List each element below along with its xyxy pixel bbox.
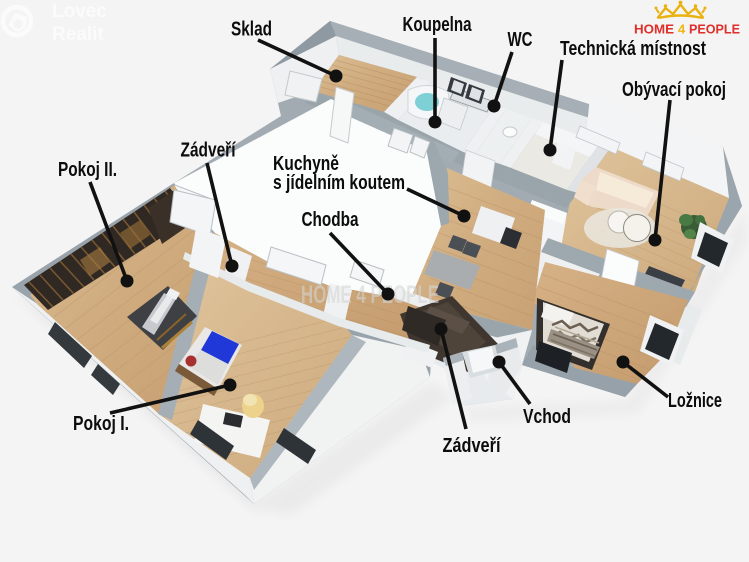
svg-text:Pokoj II.: Pokoj II. [58,159,117,181]
svg-text:Obývací pokoj: Obývací pokoj [622,79,726,101]
svg-text:Vchod: Vchod [523,406,571,428]
svg-text:Ložnice: Ložnice [668,390,722,412]
svg-text:PEOPLE: PEOPLE [689,22,740,37]
svg-text:Lovec: Lovec [52,1,107,22]
svg-text:Sklad: Sklad [231,19,272,41]
svg-text:s jídelním koutem: s jídelním koutem [273,172,405,194]
svg-text:Chodba: Chodba [302,209,360,231]
svg-text:Technická místnost: Technická místnost [560,38,706,60]
svg-text:Pokoj I.: Pokoj I. [73,413,129,435]
svg-text:HOME 4 PEOPLE: HOME 4 PEOPLE [301,281,439,309]
svg-text:Koupelna: Koupelna [403,14,473,36]
svg-text:4: 4 [678,22,686,37]
svg-text:Zádveří: Zádveří [181,140,237,162]
svg-text:Realit: Realit [52,24,104,45]
svg-text:HOME: HOME [634,22,674,37]
svg-text:WC: WC [508,29,533,51]
svg-text:Zádveří: Zádveří [443,435,502,457]
